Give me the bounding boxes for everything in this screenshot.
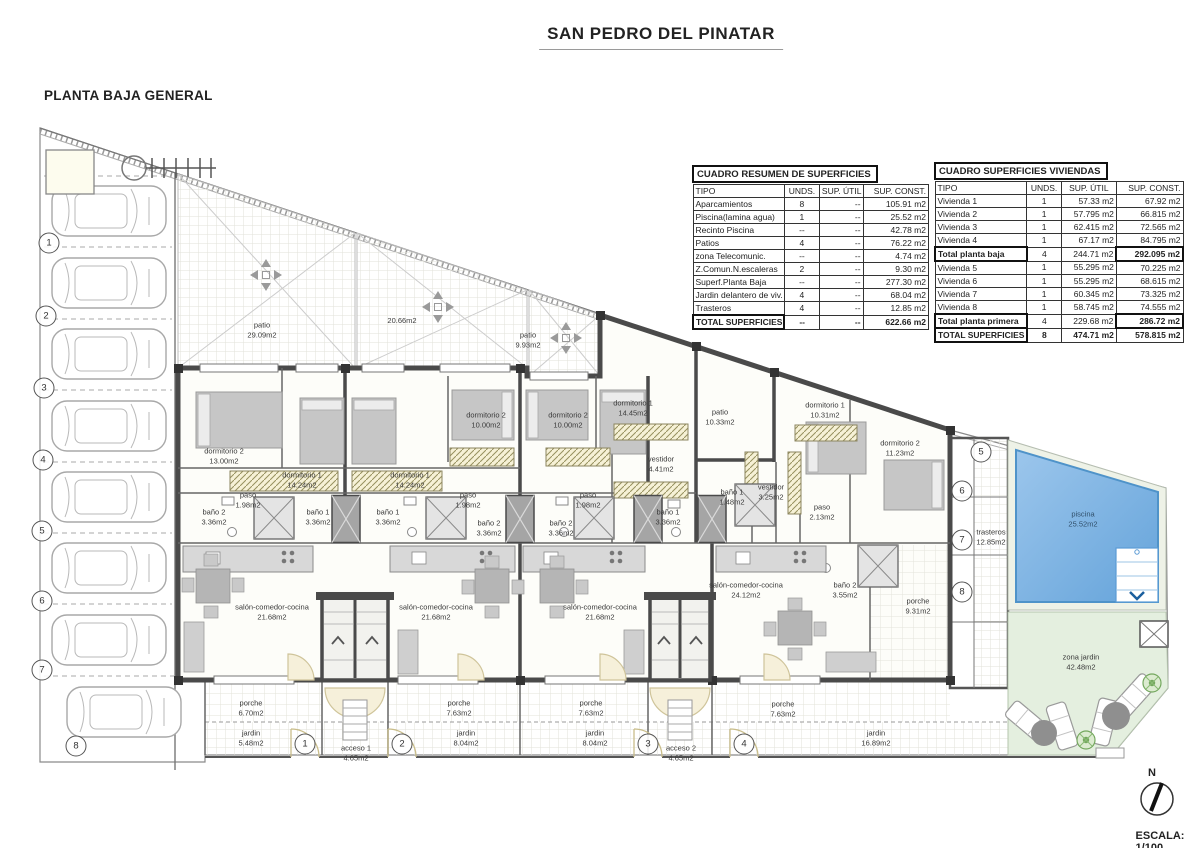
scale-label: ESCALA: 1/100 xyxy=(1136,830,1185,848)
dwellings-surface-table: CUADRO SUPERFICIES VIVIENDAS TIPO UNDS. … xyxy=(934,161,1184,343)
table-row: TOTAL SUPERFICIES8 474.71 m2578.815 m2 xyxy=(935,328,1183,342)
floor-plan-page: SAN PEDRO DEL PINATAR PLANTA BAJA GENERA… xyxy=(0,0,1200,848)
parking-number: 1 xyxy=(39,233,60,254)
table-header-row: TIPO UNDS. SUP. ÚTIL SUP. CONST. xyxy=(693,185,929,198)
planter-box xyxy=(1096,748,1124,758)
table-row: Trasteros4 --12.85 m2 xyxy=(693,302,929,316)
table-row: Z.Comun.N.escaleras2 --9.30 m2 xyxy=(693,263,929,276)
unit-number: 1 xyxy=(295,734,316,755)
parking-number: 8 xyxy=(66,736,87,757)
table-row: Vivienda 41 67.17 m284.795 m2 xyxy=(935,234,1183,248)
parking-number: 6 xyxy=(32,591,53,612)
table-row: zona Telecomunic.-- --4.74 m2 xyxy=(693,250,929,263)
table-row: Jardin delantero de viv.4 --68.04 m2 xyxy=(693,289,929,302)
parking-number: 4 xyxy=(33,450,54,471)
parking-number: 3 xyxy=(34,378,55,399)
parking-number: 5 xyxy=(32,521,53,542)
storage-number: 6 xyxy=(952,481,973,502)
garden-table xyxy=(1102,702,1130,730)
table-row: TOTAL SUPERFICIES-- --622.66 m2 xyxy=(693,315,929,329)
parking-number: 7 xyxy=(32,660,53,681)
table-row: Vivienda 81 58.745 m274.555 m2 xyxy=(935,301,1183,315)
table-row: Superf.Planta Baja-- --277.30 m2 xyxy=(693,276,929,289)
garden-area xyxy=(1004,612,1168,758)
storage-number: 8 xyxy=(952,582,973,603)
table-row: Vivienda 31 62.415 m272.565 m2 xyxy=(935,221,1183,234)
table-row: Vivienda 61 55.295 m268.615 m2 xyxy=(935,275,1183,288)
table-row: Vivienda 51 55.295 m270.225 m2 xyxy=(935,261,1183,275)
table-row: Total planta primera4 229.68 m2286.72 m2 xyxy=(935,314,1183,328)
pool-stairs-icon xyxy=(1116,548,1158,602)
utility-box xyxy=(46,150,94,194)
unit-number: 4 xyxy=(734,734,755,755)
storage-number: 5 xyxy=(971,442,992,463)
table-row: Aparcamientos8 --105.91 m2 xyxy=(693,198,929,211)
north-label: N xyxy=(1148,767,1156,779)
table-row: Vivienda 71 60.345 m273.325 m2 xyxy=(935,288,1183,301)
unit-number: 3 xyxy=(638,734,659,755)
table-row: Vivienda 21 57.795 m266.815 m2 xyxy=(935,208,1183,221)
table-row: Vivienda 11 57.33 m267.92 m2 xyxy=(935,195,1183,208)
table-row: Piscina(lamina agua)1 --25.52 m2 xyxy=(693,211,929,224)
parking-number: 2 xyxy=(36,306,57,327)
plant-icon xyxy=(1143,674,1161,692)
crossed-box-icon xyxy=(1140,621,1168,647)
table-title: CUADRO RESUMEN DE SUPERFICIES xyxy=(692,165,878,183)
north-compass-icon xyxy=(1141,783,1173,815)
surface-summary-table: CUADRO RESUMEN DE SUPERFICIES TIPO UNDS.… xyxy=(692,164,929,330)
storage-number: 7 xyxy=(952,530,973,551)
table-row: Recinto Piscina-- --42.78 m2 xyxy=(693,224,929,237)
unit-number: 2 xyxy=(392,734,413,755)
garden-table xyxy=(1031,720,1057,746)
floor-plan-drawing xyxy=(0,0,1200,848)
table-title: CUADRO SUPERFICIES VIVIENDAS xyxy=(934,162,1108,180)
table-row: Patios4 --76.22 m2 xyxy=(693,237,929,250)
plant-icon xyxy=(1077,731,1095,749)
table-row: Total planta baja4 244.71 m2292.095 m2 xyxy=(935,247,1183,261)
pool-area xyxy=(1008,440,1166,610)
table-header-row: TIPO UNDS. SUP. ÚTIL SUP. CONST. xyxy=(935,182,1183,195)
